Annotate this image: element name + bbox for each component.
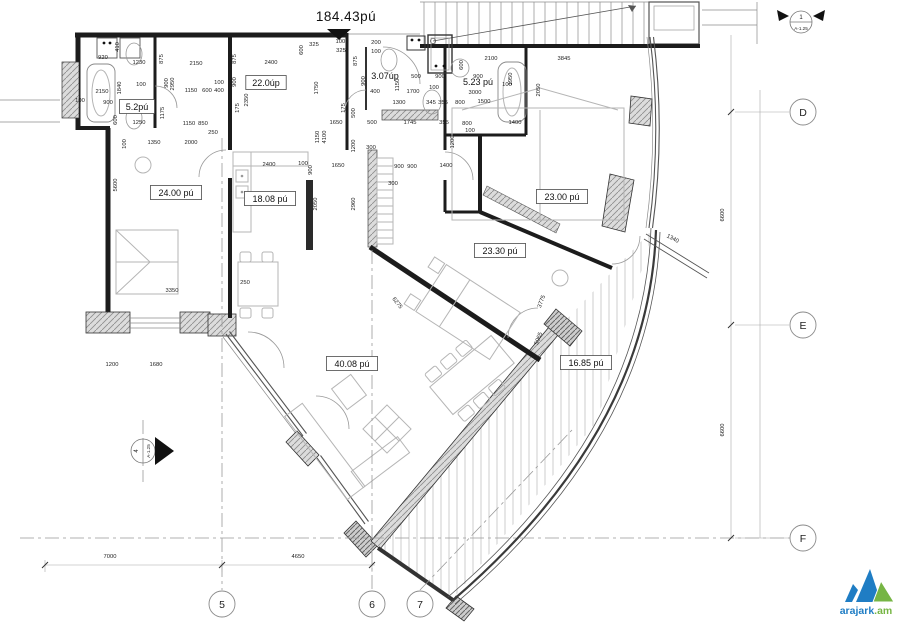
dimension-label: 1680 (150, 362, 163, 368)
sofa (285, 370, 410, 500)
bathtub (498, 62, 526, 122)
dimension-label: 250 (240, 280, 250, 286)
dimension-label: 1000 (336, 39, 349, 45)
dimension-label: 1650 (330, 120, 343, 126)
dimension-label: 1230 (133, 60, 146, 66)
dimension-label: 875 (159, 54, 165, 64)
section-flag-icon (813, 10, 825, 21)
dimension-label: 100 (122, 139, 128, 149)
dimension-label: 100 (75, 98, 85, 104)
dimension-label: 2960 (351, 198, 357, 211)
dimension-label: 600 (459, 60, 465, 70)
room-area-label: 22.0úp (252, 78, 280, 88)
dimension-label: 100 (214, 80, 224, 86)
table-round (135, 157, 151, 173)
grid-bubble-label: F (800, 533, 806, 545)
logo: arajark.am (840, 569, 894, 617)
dimension-label: 900 (308, 165, 314, 175)
dimension-label: 175 (341, 103, 347, 113)
logo-text: arajark.am (840, 605, 893, 617)
dimension-label: 1150 (185, 88, 197, 94)
east-curved-wall (602, 37, 659, 232)
dimension-label: 6600 (720, 209, 726, 222)
room-area-label: 23.30 pú (482, 246, 517, 256)
dimension-label: 1200 (450, 136, 456, 149)
floor-plan-sheet: 184.43pú 1 A-1.25 4 A-1.25 9201230410215… (0, 0, 900, 635)
dimension-label: 400 (370, 89, 380, 95)
room-area-label: 5.23 pú (463, 77, 493, 87)
dimension-label: 2950 (170, 78, 176, 91)
dimension-label: 1750 (314, 82, 320, 95)
dimension-label: 1650 (332, 163, 345, 169)
dimension-label: 2400 (265, 60, 278, 66)
grid-bubble-label: 6 (369, 599, 375, 611)
dimension-label: 600 (202, 88, 212, 94)
dimension-label: 325 (336, 48, 346, 54)
dimension-label: 355 (439, 120, 449, 126)
dimension-label: 100 (371, 49, 381, 55)
logo-text-primary: arajark (840, 605, 875, 617)
dimension-label: 1150 (183, 121, 195, 127)
balcony (371, 228, 709, 621)
dimension-label: 3000 (469, 90, 482, 96)
dimension-label: 2150 (190, 61, 203, 67)
dimension-label: 900 (232, 77, 238, 87)
section-marker-top: 1 A-1.25 (777, 10, 825, 33)
dimension-label: 600 (113, 115, 119, 125)
dimension-label: 900 (394, 164, 404, 170)
dimension-label: 175 (235, 103, 241, 113)
dimension-label: 1745 (404, 120, 417, 126)
dimension-label: 900 (435, 74, 445, 80)
dimension-label: 1200 (351, 140, 357, 153)
logo-mountain-icon (845, 584, 858, 602)
shower (428, 35, 452, 73)
dimension-label: 800 (455, 100, 465, 106)
dimension-label: 100 (298, 161, 308, 167)
dimension-label: 900 (103, 100, 113, 106)
section-flag-icon (777, 10, 789, 21)
dimension-label: 3845 (558, 56, 571, 62)
armchair (332, 374, 367, 409)
hatched-wall (368, 150, 377, 247)
dimension-label: 2150 (96, 89, 109, 95)
room-area-label: 23.00 pú (544, 192, 579, 202)
dimension-label: 300 (388, 181, 398, 187)
dimension-label: 800 (462, 121, 472, 127)
dimension-label: 4100 (322, 131, 328, 144)
dimension-label: 2000 (185, 140, 198, 146)
dimension-label: 1840 (117, 82, 123, 95)
section-flag-icon (155, 437, 174, 465)
dimension-label: 1340 (665, 233, 679, 244)
dimension-label: 3350 (166, 288, 179, 294)
room-area-label: 16.85 pú (568, 358, 603, 368)
hatched-wall (382, 110, 438, 120)
dimension-label: 6275 (390, 296, 403, 310)
dimension-label: 875 (232, 54, 238, 64)
dimension-label: 1175 (160, 107, 166, 119)
dryer (120, 38, 140, 58)
dimension-label: 325 (309, 42, 319, 48)
dimension-label: 7000 (104, 554, 117, 560)
room-area-label: 5.2pú (126, 102, 149, 112)
dimension-label: 1350 (148, 140, 161, 146)
dimension-label: 1200 (106, 362, 119, 368)
grid-bubble-label: D (799, 107, 807, 119)
dimension-label: 900 (407, 164, 417, 170)
dimension-label: 5600 (113, 179, 119, 192)
grid-bubble-label: E (799, 320, 806, 332)
dimension-label: 345 (426, 100, 436, 106)
dimension-label: 2100 (485, 56, 498, 62)
balcony-floor-hatch (378, 228, 654, 600)
room-area-label: 40.08 pú (334, 359, 369, 369)
dimension-label: 100 (465, 128, 475, 134)
toilet (381, 49, 397, 71)
dimension-label: 1300 (393, 100, 406, 106)
dimension-label: 250 (208, 130, 218, 136)
wall-pier (602, 174, 634, 232)
dimension-label: 600 (299, 45, 305, 55)
dimension-label: 410 (115, 42, 121, 52)
dimension-label: 100 (136, 82, 146, 88)
dimension-label: 6600 (720, 424, 726, 437)
room-area-label: 3.07úp (371, 71, 399, 81)
dimension-label: 850 (198, 121, 208, 127)
window (130, 318, 182, 328)
dimension-label: 1400 (509, 120, 522, 126)
total-area-label: 184.43pú (316, 9, 376, 24)
dimension-label: 200 (371, 40, 381, 46)
wall-pier (180, 312, 210, 333)
dimension-label: 875 (353, 56, 359, 66)
coffee-table (363, 405, 411, 453)
dimension-label: 920 (98, 55, 108, 61)
dimension-label: 1150 (315, 131, 321, 143)
wall-pier (629, 96, 652, 126)
section-sheet: A-1.25 (794, 26, 808, 31)
section-sheet: A-1.25 (146, 444, 151, 458)
dimension-label: 4650 (292, 554, 305, 560)
room-area-label: 18.08 pú (252, 194, 287, 204)
grid-bubbles: DEF567 (209, 99, 816, 617)
grid-bubble-label: 7 (417, 599, 423, 611)
dimension-label: 2050 (313, 198, 319, 211)
adjacent-unit-block (649, 2, 757, 44)
grid-bubble-label: 5 (219, 599, 225, 611)
dimension-label: 1700 (407, 89, 420, 95)
logo-text-suffix: .am (874, 605, 892, 617)
dimension-label: 3775 (537, 295, 547, 309)
dimension-label: 400 (228, 103, 234, 113)
wall-stub (306, 180, 313, 250)
dimension-label: 2400 (263, 162, 276, 168)
dimension-label: 500 (411, 74, 421, 80)
dimension-label: 1500 (478, 99, 491, 105)
dimension-label: 1400 (440, 163, 453, 169)
dimension-label: 300 (366, 145, 376, 151)
room-area-label: 24.00 pú (158, 188, 193, 198)
dimension-label: 100 (429, 85, 439, 91)
wall-pier (62, 62, 79, 118)
dimension-label: 2350 (244, 94, 250, 107)
pouf (552, 270, 568, 286)
dimension-label: 500 (367, 120, 377, 126)
dimension-label: 400 (214, 88, 224, 94)
wall-pier (86, 312, 130, 333)
dimension-label: 100 (502, 82, 512, 88)
dimension-label: 2050 (536, 84, 542, 97)
stairwell (420, 2, 650, 44)
dimension-label: 900 (361, 76, 367, 86)
shelf-unit (377, 158, 393, 244)
floor-plan-drawing: 184.43pú 1 A-1.25 4 A-1.25 9201230410215… (0, 0, 900, 635)
dimension-label: 500 (351, 108, 357, 118)
dimension-label: 1250 (133, 120, 146, 126)
section-marker-left: 4 A-1.25 (131, 420, 174, 482)
dimension-label: 355 (438, 100, 448, 106)
